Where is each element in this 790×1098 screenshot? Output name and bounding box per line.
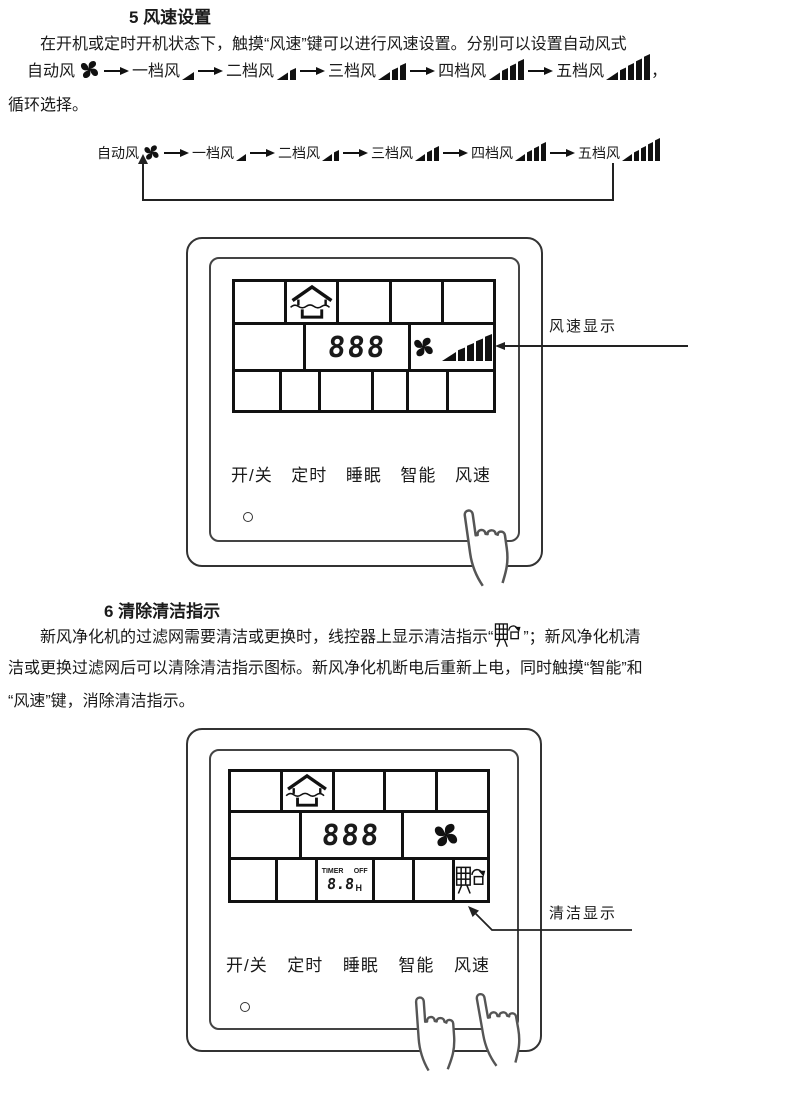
speed-item-label: 二档风 xyxy=(278,143,320,163)
lcd-cell-fan xyxy=(404,813,487,857)
cycle-loop-arrow xyxy=(142,163,614,201)
arrow-right-icon xyxy=(104,67,129,75)
lcd-cell-mode xyxy=(287,282,336,322)
lcd-cell-fan-speed xyxy=(411,325,493,369)
lcd-cell xyxy=(231,813,299,857)
speed-item-label: 二档风 xyxy=(226,62,274,82)
smart-button[interactable]: 智能 xyxy=(400,461,436,486)
speed-item-label: 自动风 xyxy=(97,143,139,163)
seven-segment-digits: 888 xyxy=(326,330,387,364)
speed-bars-1-icon xyxy=(236,154,246,161)
speed-bars-2-icon xyxy=(322,150,339,161)
speed-item-label: 四档风 xyxy=(471,143,513,163)
arrow-right-icon xyxy=(300,67,325,75)
lcd-cell xyxy=(374,372,406,410)
panel2-lcd-display: 888 TIMER OFF 8.8 H xyxy=(228,769,490,903)
filter-clean-icon xyxy=(455,863,487,897)
lcd-cell xyxy=(386,772,435,810)
lcd-cell xyxy=(392,282,441,322)
lcd-cell xyxy=(231,860,275,900)
fan-icon xyxy=(411,334,436,360)
panel2-buttons: 开/关 定时 睡眠 智能 风速 xyxy=(226,951,490,976)
panel1-lcd-display: 888 xyxy=(232,279,496,413)
seven-segment-digits: 888 xyxy=(321,818,382,852)
lcd-cell xyxy=(235,325,303,369)
fan-icon xyxy=(431,820,461,850)
lcd-cell xyxy=(444,282,493,322)
speed-sequence-inline: 自动风 一档风 二档风 三档风 四档风 五档风 ， xyxy=(27,54,667,82)
panel1-buttons: 开/关 定时 睡眠 智能 风速 xyxy=(231,461,491,486)
lcd-cell-timer: TIMER OFF 8.8 H xyxy=(318,860,372,900)
section6-line1a: 新风净化机的过滤网需要清洁或更换时，线控器上显示清洁指示“ xyxy=(40,629,493,646)
speed-bars-4-icon xyxy=(488,59,524,81)
lcd-cell xyxy=(321,372,372,410)
speed-item-label: 三档风 xyxy=(328,62,376,82)
section6-line1b: ”；新风净化机清 xyxy=(523,629,640,646)
pointing-hand-icon xyxy=(447,964,546,1073)
house-airflow-icon xyxy=(285,773,329,809)
lcd-cell-digits: 888 xyxy=(302,813,401,857)
filter-clean-icon xyxy=(494,621,522,649)
speed-item-label: 三档风 xyxy=(371,143,413,163)
lcd-cell xyxy=(409,372,446,410)
power-button[interactable]: 开/关 xyxy=(231,461,273,486)
speed-bars-5-icon xyxy=(442,334,492,361)
speed-bars-3-icon xyxy=(378,63,406,80)
fan-speed-button[interactable]: 风速 xyxy=(455,461,491,486)
speed-item-label: 五档风 xyxy=(556,62,604,82)
speed-item-label: 四档风 xyxy=(438,62,486,82)
arrow-right-icon xyxy=(528,67,553,75)
speed-item-label: 五档风 xyxy=(578,143,620,163)
arrow-right-icon xyxy=(550,149,575,157)
timer-label: TIMER xyxy=(322,868,344,875)
speed-bars-5-icon xyxy=(606,54,650,80)
section5-heading: 5 风速设置 xyxy=(129,3,211,28)
arrow-right-icon xyxy=(410,67,435,75)
timer-button[interactable]: 定时 xyxy=(291,461,327,486)
pointing-hand-icon xyxy=(435,482,534,593)
lcd-cell-mode xyxy=(283,772,332,810)
indicator-led xyxy=(243,512,253,522)
lcd-cell xyxy=(375,860,412,900)
speed-cycle-diagram: 自动风 一档风 二档风 三档风 四档风 五档风 xyxy=(97,138,661,163)
callout-arrow-icon xyxy=(504,345,688,347)
timer-unit: H xyxy=(356,883,363,893)
speed-bars-5-icon xyxy=(622,138,660,161)
speed-bars-3-icon xyxy=(415,146,439,161)
lcd-cell xyxy=(415,860,451,900)
lcd-cell xyxy=(282,372,318,410)
speed-bars-2-icon xyxy=(276,68,296,81)
section6-paragraph-line1: 新风净化机的过滤网需要清洁或更换时，线控器上显示清洁指示“”；新风净化机清 xyxy=(40,621,641,649)
arrow-right-icon xyxy=(198,67,223,75)
lcd-cell xyxy=(235,372,279,410)
smart-button[interactable]: 智能 xyxy=(398,951,434,976)
speed-item-label: 一档风 xyxy=(132,62,180,82)
lcd-cell xyxy=(449,372,493,410)
indicator-led xyxy=(240,1002,250,1012)
arrow-right-icon xyxy=(164,149,189,157)
timer-digits: 8.8 xyxy=(327,875,356,893)
lcd-cell-digits: 888 xyxy=(306,325,408,369)
lcd-cell xyxy=(339,282,388,322)
section6-paragraph-line3: “风速”键，消除清洁指示。 xyxy=(8,687,195,711)
lcd-cell xyxy=(231,772,280,810)
speed-bars-1-icon xyxy=(182,72,194,80)
speed-bars-4-icon xyxy=(515,142,546,161)
fan-icon xyxy=(78,58,101,81)
speed-item-label: 一档风 xyxy=(192,143,234,163)
section5-paragraph-line1: 在开机或定时开机状态下，触摸“风速”键可以进行风速设置。分别可以设置自动风式 xyxy=(40,30,627,54)
sleep-button[interactable]: 睡眠 xyxy=(346,461,382,486)
manual-page: 5 风速设置 在开机或定时开机状态下，触摸“风速”键可以进行风速设置。分别可以设… xyxy=(0,0,790,1098)
timer-button[interactable]: 定时 xyxy=(287,951,323,976)
callout-arrow-icon xyxy=(462,899,634,935)
trailing-comma: ， xyxy=(651,62,667,82)
section6-paragraph-line2: 洁或更换过滤网后可以清除清洁指示图标。新风净化机断电后重新上电，同时触摸“智能”… xyxy=(8,654,643,678)
arrow-right-icon xyxy=(443,149,468,157)
sleep-button[interactable]: 睡眠 xyxy=(343,951,379,976)
power-button[interactable]: 开/关 xyxy=(226,951,268,976)
section6-heading: 6 清除清洁指示 xyxy=(104,597,220,622)
speed-item-label: 自动风 xyxy=(27,62,75,82)
arrow-right-icon xyxy=(343,149,368,157)
lcd-cell xyxy=(235,282,284,322)
timer-off-label: OFF xyxy=(354,868,368,875)
lcd-cell-clean xyxy=(455,860,487,900)
lcd-cell xyxy=(335,772,384,810)
section5-paragraph-line3: 循环选择。 xyxy=(8,91,88,115)
fan-speed-callout-label: 风速显示 xyxy=(549,315,617,336)
lcd-cell xyxy=(278,860,314,900)
house-airflow-icon xyxy=(290,284,334,321)
lcd-cell xyxy=(438,772,487,810)
arrow-right-icon xyxy=(250,149,275,157)
